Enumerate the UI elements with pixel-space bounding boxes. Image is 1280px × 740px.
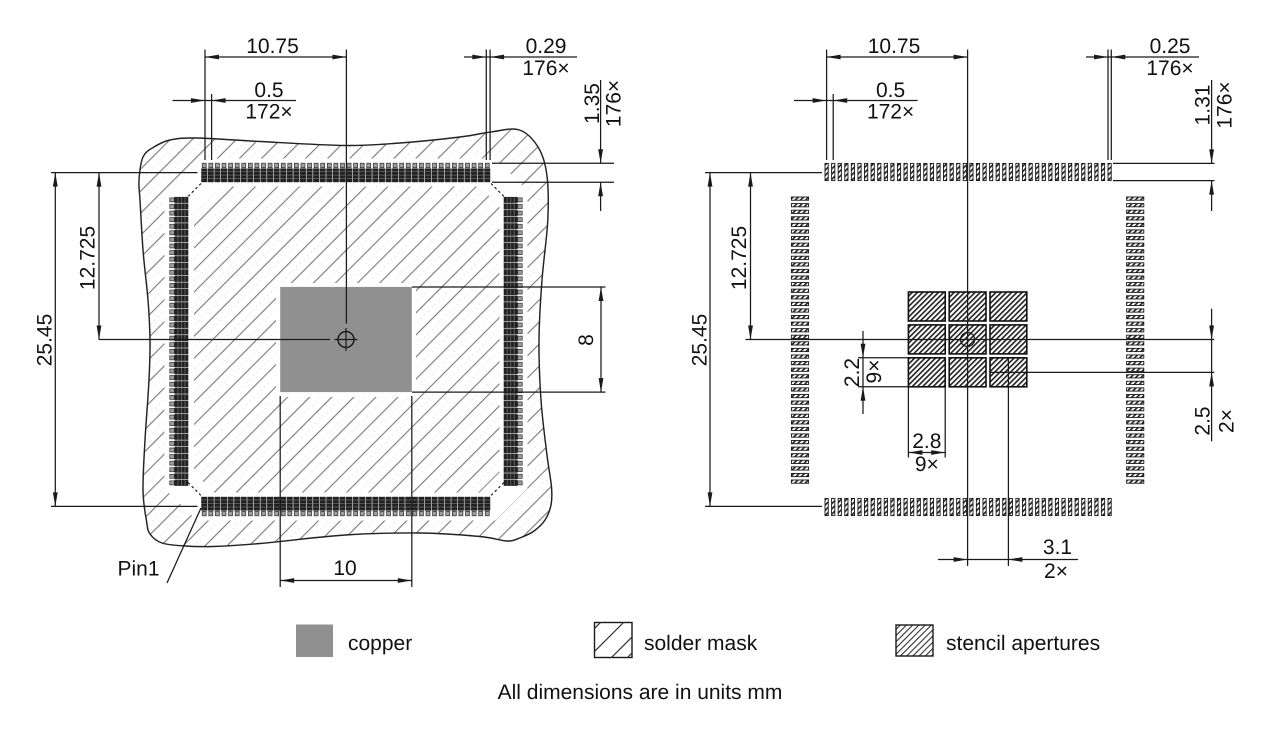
svg-text:25.45: 25.45 [34, 314, 57, 367]
svg-text:2.8: 2.8 [912, 430, 941, 453]
svg-text:176×: 176× [1214, 81, 1237, 128]
svg-text:2.2: 2.2 [841, 358, 864, 387]
svg-text:10.75: 10.75 [246, 35, 299, 58]
svg-text:10: 10 [333, 557, 356, 580]
svg-text:All dimensions are in units mm: All dimensions are in units mm [498, 681, 783, 704]
svg-text:10.75: 10.75 [868, 35, 921, 58]
svg-text:2.5: 2.5 [1192, 406, 1215, 435]
svg-text:3.1: 3.1 [1043, 536, 1072, 559]
svg-text:12.725: 12.725 [77, 226, 100, 290]
svg-text:176×: 176× [522, 57, 569, 80]
svg-text:9×: 9× [915, 453, 939, 476]
svg-text:8: 8 [575, 334, 598, 346]
svg-text:copper: copper [348, 632, 412, 655]
svg-text:0.5: 0.5 [876, 79, 905, 102]
svg-text:2×: 2× [1216, 409, 1239, 433]
svg-text:0.25: 0.25 [1150, 35, 1191, 58]
svg-text:172×: 172× [867, 101, 914, 124]
svg-text:Pin1: Pin1 [118, 558, 160, 581]
svg-text:1.31: 1.31 [1192, 85, 1215, 126]
svg-text:1.35: 1.35 [581, 83, 604, 124]
svg-text:9×: 9× [863, 360, 886, 384]
svg-text:2×: 2× [1044, 560, 1068, 583]
svg-text:0.5: 0.5 [254, 79, 283, 102]
svg-text:176×: 176× [1146, 57, 1193, 80]
svg-text:stencil apertures: stencil apertures [946, 632, 1100, 655]
svg-text:25.45: 25.45 [689, 314, 712, 367]
svg-text:0.29: 0.29 [526, 35, 567, 58]
svg-text:172×: 172× [245, 101, 292, 124]
svg-text:12.725: 12.725 [728, 226, 751, 290]
svg-text:solder mask: solder mask [644, 632, 758, 655]
svg-text:176×: 176× [603, 80, 626, 127]
